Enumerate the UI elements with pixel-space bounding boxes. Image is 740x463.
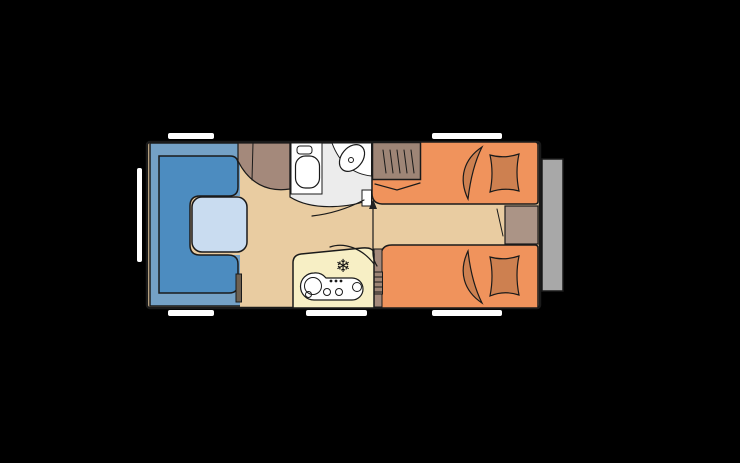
floorplan-canvas: ❄ <box>0 0 740 463</box>
window-bottom-right <box>432 310 502 316</box>
knob-dot-2 <box>335 280 338 283</box>
entry-door <box>542 159 563 291</box>
washroom-door-post <box>362 190 372 206</box>
toilet-bowl <box>296 156 320 188</box>
knob-dot-1 <box>330 280 333 283</box>
window-top-left <box>168 133 214 139</box>
knob-dot-3 <box>340 280 343 283</box>
pillow-top-bed <box>490 154 519 192</box>
heater <box>374 272 383 294</box>
window-bottom-middle <box>306 310 367 316</box>
dinette-table <box>192 197 247 252</box>
basin-drain <box>349 158 354 163</box>
fridge-snowflake-icon: ❄ <box>335 256 350 277</box>
window-bottom-left <box>168 310 214 316</box>
caravan-floorplan: ❄ <box>0 0 740 463</box>
toilet-cistern <box>297 146 312 154</box>
window-front-left <box>137 168 142 262</box>
wardrobe <box>373 143 421 180</box>
pillow-bottom-bed <box>490 256 519 296</box>
window-top-right <box>432 133 502 139</box>
bedside-chest <box>505 206 538 244</box>
bench-end-chest <box>236 274 242 302</box>
